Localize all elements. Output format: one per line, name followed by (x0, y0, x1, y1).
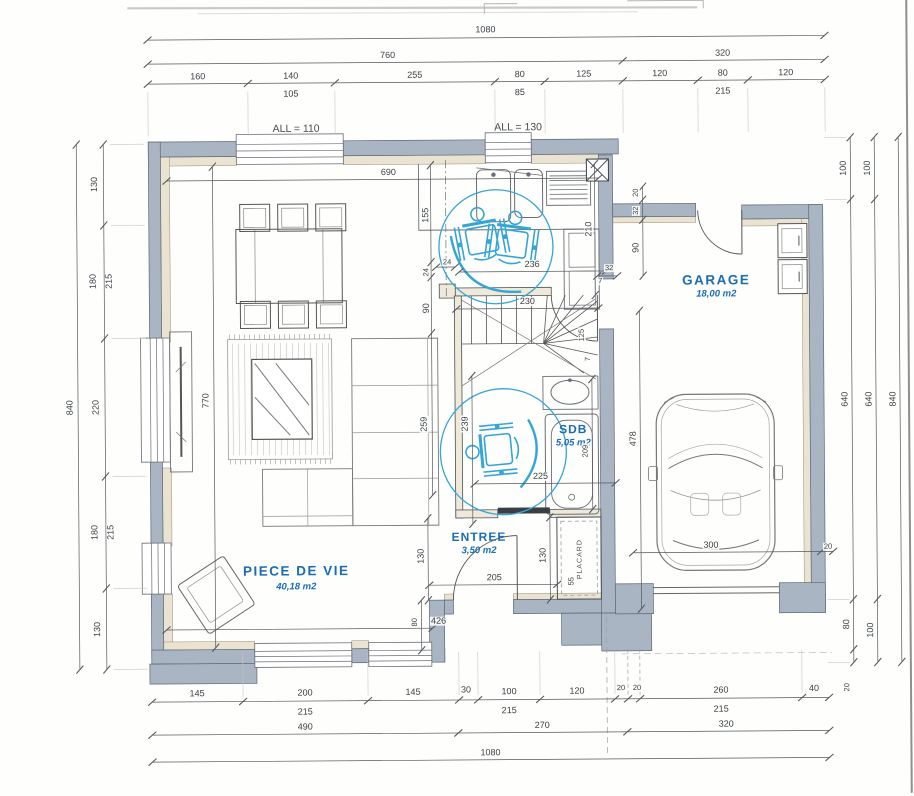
dim-label: 155 (421, 207, 430, 224)
dim-label: 125 (578, 328, 586, 343)
dim-label: 130 (539, 547, 548, 564)
dim-label: 320 (714, 49, 731, 58)
dim-label: 80 (411, 617, 419, 627)
dim-label: 690 (380, 168, 397, 177)
dim-label: 640 (864, 391, 873, 408)
dim-label: 130 (90, 176, 99, 193)
dim-label: 20 (616, 684, 626, 692)
dim-label: 24 (422, 267, 430, 277)
dim-label: 120 (651, 69, 668, 78)
room-area-garage: 18,00 m2 (696, 289, 736, 299)
dim-label: 80 (717, 69, 729, 78)
dim-label: 255 (406, 71, 423, 80)
room-area-piece-de-vie: 40,18 m2 (276, 582, 316, 592)
dim-label: 215 (714, 87, 731, 96)
dim-label: 100 (866, 622, 875, 639)
dim-label: 209 (582, 444, 590, 459)
dim-label: 24 (442, 258, 452, 266)
room-label-sdb: SDB (559, 423, 587, 435)
dim-label: 20 (843, 682, 851, 692)
dim-label: 32 (632, 206, 640, 216)
sill-note-left: ALL = 110 (273, 124, 320, 135)
dim-label: 426 (430, 617, 447, 626)
dim-label: 840 (888, 390, 897, 407)
dim-label: 225 (532, 472, 549, 481)
dim-label: 20 (632, 188, 640, 198)
dim-label: 215 (713, 705, 730, 714)
dim-label: 180 (90, 524, 99, 541)
dim-label: 140 (282, 72, 299, 81)
dim-label: 205 (486, 573, 503, 582)
dim-label: 770 (201, 392, 210, 409)
dim-label: 7 (597, 277, 603, 285)
dim-label: 840 (65, 399, 74, 416)
dim-label: 40 (808, 684, 820, 693)
dim-label: 260 (712, 686, 729, 695)
dim-label: 1080 (479, 748, 501, 757)
dim-label: 100 (863, 160, 872, 177)
dim-label: 215 (105, 273, 114, 290)
dim-label: 215 (106, 524, 115, 541)
dim-label: 270 (534, 721, 551, 730)
dim-label: 125 (575, 70, 592, 79)
dim-label: 215 (501, 706, 518, 715)
dim-label: 100 (839, 160, 848, 177)
dim-label: 300 (702, 541, 719, 550)
dim-label: 120 (569, 687, 586, 696)
dim-label: 760 (379, 51, 396, 60)
dim-label: 145 (405, 688, 422, 697)
dim-label: 55 (567, 576, 575, 586)
dim-label: 259 (420, 416, 429, 433)
dim-label: 80 (842, 618, 851, 630)
dim-label: 200 (297, 689, 314, 698)
dim-label: 239 (461, 415, 470, 432)
room-label-placard: PLACARD (576, 539, 583, 579)
dim-label: 1080 (474, 25, 496, 34)
dim-label: 236 (524, 260, 541, 269)
dim-label: 85 (514, 88, 526, 97)
room-label-garage: GARAGE (682, 273, 750, 287)
dim-label: 130 (417, 548, 426, 565)
dim-label: 80 (514, 70, 526, 79)
dim-label: 130 (93, 621, 102, 638)
dim-label: 478 (629, 430, 638, 447)
dim-label: 160 (189, 72, 206, 81)
room-label-entree: ENTREE (452, 531, 507, 543)
floor-plan: ALL = 110 ALL = 130 PIECE DE VIE 40,18 m… (0, 0, 914, 796)
dim-label: 20 (823, 543, 833, 551)
dim-label: 145 (189, 689, 206, 698)
dim-label: 90 (631, 242, 640, 254)
dim-label: 32 (604, 264, 614, 272)
dim-label: 20 (632, 684, 642, 692)
dim-label: 105 (282, 90, 299, 99)
dim-label: 100 (501, 687, 518, 696)
room-area-entree: 3,50 m2 (462, 546, 497, 556)
dim-label: 230 (519, 297, 536, 306)
sill-note-right: ALL = 130 (494, 122, 542, 133)
floor-plan-drawing (0, 0, 914, 796)
dim-label: 215 (297, 708, 314, 717)
dim-label: 640 (840, 391, 849, 408)
dim-label: 210 (584, 221, 593, 238)
dim-label: 180 (89, 273, 98, 290)
dim-label: 7 (584, 356, 592, 362)
room-label-piece-de-vie: PIECE DE VIE (243, 564, 350, 578)
dim-label: 220 (91, 399, 100, 416)
dim-label: 90 (422, 302, 431, 314)
dim-label: 320 (718, 720, 735, 729)
dim-label: 120 (777, 68, 794, 77)
dim-label: 30 (460, 685, 472, 694)
dim-label: 490 (297, 723, 314, 732)
